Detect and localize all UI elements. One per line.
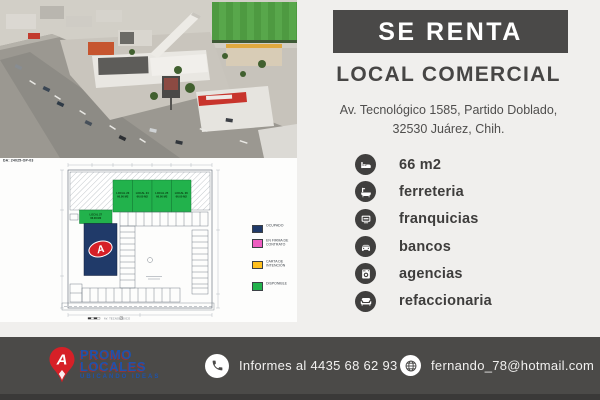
svg-text:66.00 M2: 66.00 M2 [176,195,188,199]
sofa-icon [355,291,376,312]
feature-label: agencias [399,266,463,282]
info-panel: SE RENTA LOCAL COMERCIAL Av. Tecnológico… [297,0,600,337]
feature-row-ferreteria: ferreteria [355,178,492,205]
email-contact: fernando_78@hotmail.com [400,337,594,394]
legend-item-ocupado: OCUPADO [252,224,297,233]
svg-text:LOCAL 27: LOCAL 27 [90,213,103,217]
phone-icon [205,354,229,378]
feature-list: 66 m2 ferreteria franquicias bancos [355,151,492,315]
footer-bar: A PROMO LOCALES UBICANDO IDEAS Informes … [0,337,600,400]
brand-pin-icon: A [48,346,76,384]
feature-label: bancos [399,239,451,255]
legend-swatch-available [252,282,263,291]
brand-wordmark: PROMO LOCALES UBICANDO IDEAS [80,349,160,380]
car-icon [355,236,376,257]
feature-label: refaccionaria [399,293,492,309]
svg-text:LOCAL 25: LOCAL 25 [155,191,168,195]
street-caption: AV. TECNOLÓGICO [104,317,130,320]
feature-label: 66 m2 [399,157,441,173]
washer-icon [355,263,376,284]
address-line-2: 32530 Juárez, Chih. [393,122,505,136]
plan-legend: OCUPADO EN FIRMA DE CONTRATO CARTA DE IN… [252,224,297,296]
feature-row-refaccionaria: refaccionaria [355,287,492,314]
flyer-canvas: LOCAL 23 66.00 M2 LOCAL 24 66.00 M2 LOCA… [0,0,600,400]
legend-item-disponible: DISPONIBLE [252,282,297,291]
legend-label: DISPONIBLE [266,282,297,286]
brand-tagline: UBICANDO IDEAS [80,374,160,380]
svg-text:66.00 M2: 66.00 M2 [156,195,168,199]
legend-label: CARTA DE INTENCIÓN [266,260,297,268]
legend-label: OCUPADO [266,224,297,228]
tv-icon [355,209,376,230]
listing-address: Av. Tecnológico 1585, Partido Doblado, 3… [297,101,600,140]
feature-row-bancos: bancos [355,233,492,260]
aerial-photo [0,0,297,158]
svg-text:LOCAL 23: LOCAL 23 [116,191,129,195]
svg-text:66.00 M2: 66.00 M2 [90,216,101,220]
svg-text:LOCAL 24: LOCAL 24 [136,191,149,195]
bathtub-icon [355,181,376,202]
site-plan: LOCAL 23 66.00 M2 LOCAL 24 66.00 M2 LOCA… [0,158,297,322]
phone-contact: Informes al 4435 68 62 93 [205,337,398,394]
aerial-photo-graphic [0,0,297,158]
globe-icon [400,355,421,376]
plan-doc-ref: DA: 24025-OP-03 [3,159,33,163]
legend-swatch-contract [252,239,263,248]
legend-swatch-intent [252,261,263,270]
svg-text:66.00 M2: 66.00 M2 [117,195,129,199]
brand-name-line2: LOCALES [80,361,160,373]
legend-item-en-firma: EN FIRMA DE CONTRATO [252,239,297,255]
listing-title: LOCAL COMERCIAL [297,63,600,87]
svg-text:A: A [56,352,68,369]
svg-text:66.00 M2: 66.00 M2 [137,195,149,199]
feature-row-franquicias: franquicias [355,206,492,233]
feature-label: franquicias [399,211,479,227]
legend-swatch-occupied [252,225,263,234]
legend-label: EN FIRMA DE CONTRATO [266,239,297,247]
legend-item-carta: CARTA DE INTENCIÓN [252,260,297,276]
footer-edge-strip [0,394,600,400]
se-renta-banner: SE RENTA [333,10,568,53]
feature-row-agencias: agencias [355,260,492,287]
email-label: fernando_78@hotmail.com [431,358,594,373]
phone-label: Informes al 4435 68 62 93 [239,358,398,373]
feature-row-area: 66 m2 [355,151,492,178]
address-line-1: Av. Tecnológico 1585, Partido Doblado, [340,103,558,117]
svg-text:LOCAL 26: LOCAL 26 [175,191,188,195]
bed-icon [355,154,376,175]
feature-label: ferreteria [399,184,464,200]
brand-logo: A PROMO LOCALES UBICANDO IDEAS [48,346,160,384]
